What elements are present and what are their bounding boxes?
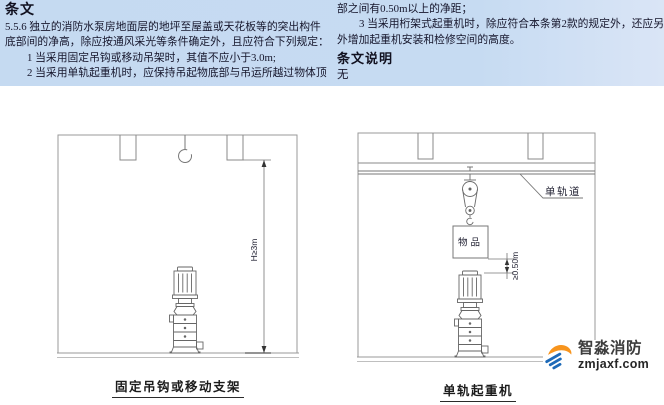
figure-monorail-hoist-diagram: 物品 ≥0.50m 单轨道 <box>357 131 617 370</box>
pump-room-outline <box>57 135 299 358</box>
article-line: 底部间的净高，除应按通风采光等条件确定外，且应符合下列规定： <box>5 35 333 50</box>
code-text-panel: 条文 5.5.6 独立的消防水泵房地面层的地坪至屋盖或天花板等的突出构件 底部间… <box>0 0 664 86</box>
figure-caption-monorail: 单轨起重机 <box>440 380 516 402</box>
article-line: 部之间有0.50m以上的净距； <box>337 2 662 17</box>
roof-protruding-beams <box>358 133 595 163</box>
height-dimension-label: H≥3m <box>249 239 259 262</box>
figure-fixed-hook-diagram: H≥3m <box>57 132 299 365</box>
article-heading: 条文 <box>5 1 333 18</box>
monorail-track <box>358 171 595 174</box>
load-box-label: 物品 <box>458 237 483 249</box>
clearance-dimension: ≥0.50m <box>484 252 520 280</box>
fire-pump-drawing <box>170 267 204 353</box>
article-column-left: 条文 5.5.6 独立的消防水泵房地面层的地坪至屋盖或天花板等的突出构件 底部间… <box>5 1 333 82</box>
article-line: 3 当采用桁架式起重机时，除应符合本条第2款的规定外，还应另 <box>337 17 662 32</box>
clearance-dimension-label: ≥0.50m <box>510 252 520 280</box>
load-box: 物品 <box>453 226 488 258</box>
height-dimension: H≥3m <box>243 160 271 353</box>
brand-logo-icon <box>545 341 574 370</box>
brand-logo[interactable]: 智淼消防 zmjaxf.com <box>543 340 651 371</box>
fire-pump-drawing <box>455 271 489 357</box>
article-line: 1 当采用固定吊钩或移动吊架时，其值不应小于3.0m; <box>5 51 333 66</box>
article-column-right: 部之间有0.50m以上的净距； 3 当采用桁架式起重机时，除应符合本条第2款的规… <box>337 2 662 82</box>
explanation-body: 无 <box>337 68 662 82</box>
explanation-heading: 条文说明 <box>337 51 662 67</box>
figure-caption-fixed-hook: 固定吊钩或移动支架 <box>112 376 244 398</box>
article-line: 外增加起重机安装和检修空间的高度。 <box>337 33 662 48</box>
hoist-trolley-and-pulley-block <box>463 167 478 225</box>
brand-website: zmjaxf.com <box>578 358 649 371</box>
article-line: 2 当采用单轨起重机时，应保持吊起物底部与吊运所越过物体顶 <box>5 66 333 81</box>
monorail-callout: 单轨道 <box>520 174 583 198</box>
monorail-label: 单轨道 <box>545 185 581 198</box>
brand-name: 智淼消防 <box>578 341 649 357</box>
article-body-right: 部之间有0.50m以上的净距； 3 当采用桁架式起重机时，除应符合本条第2款的规… <box>337 2 662 48</box>
article-body-left: 5.5.6 独立的消防水泵房地面层的地坪至屋盖或天花板等的突出构件 底部间的净高… <box>5 20 333 82</box>
article-line: 5.5.6 独立的消防水泵房地面层的地坪至屋盖或天花板等的突出构件 <box>5 20 333 35</box>
fixed-hook-icon <box>179 135 192 163</box>
ceiling-protruding-beams <box>120 135 243 160</box>
